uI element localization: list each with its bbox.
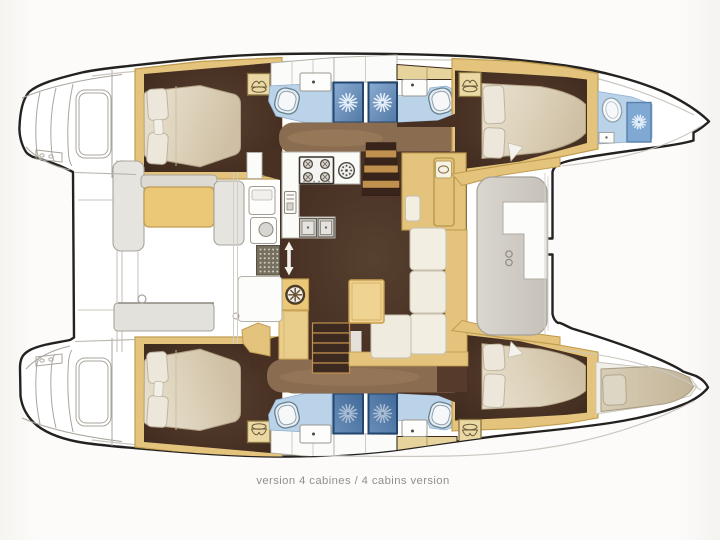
svg-text:version 4 cabines / 4 cabins v: version 4 cabines / 4 cabins version: [256, 475, 449, 487]
